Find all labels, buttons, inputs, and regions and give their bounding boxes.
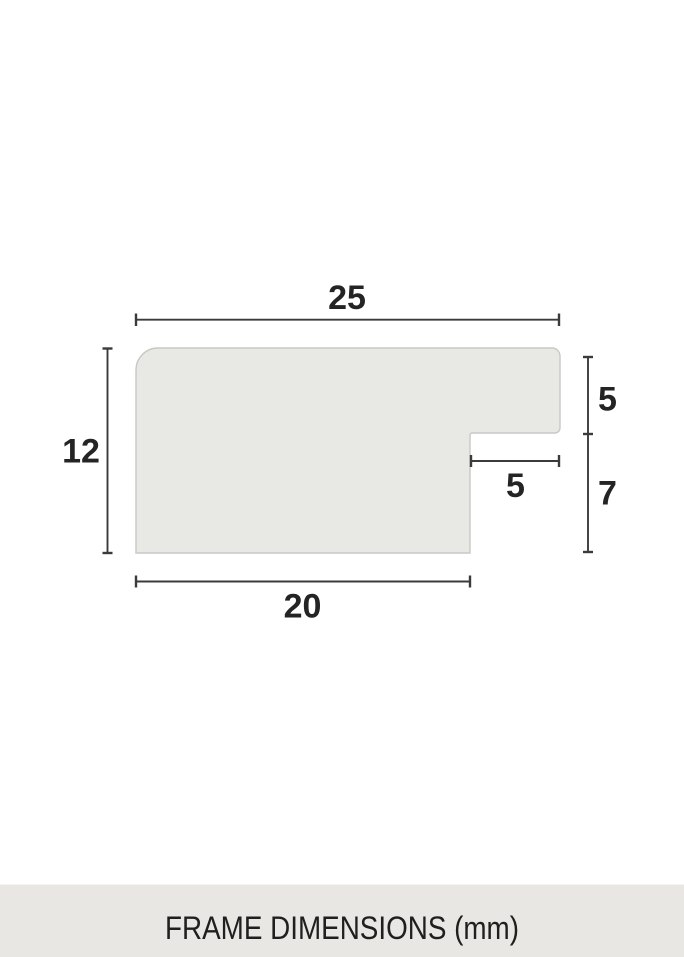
svg-text:20: 20 (284, 588, 322, 626)
svg-text:5: 5 (598, 381, 617, 419)
svg-text:5: 5 (506, 467, 525, 505)
svg-text:25: 25 (328, 279, 366, 317)
svg-text:7: 7 (598, 475, 617, 513)
svg-text:FRAME DIMENSIONS (mm): FRAME DIMENSIONS (mm) (165, 910, 519, 946)
svg-text:12: 12 (62, 433, 100, 471)
